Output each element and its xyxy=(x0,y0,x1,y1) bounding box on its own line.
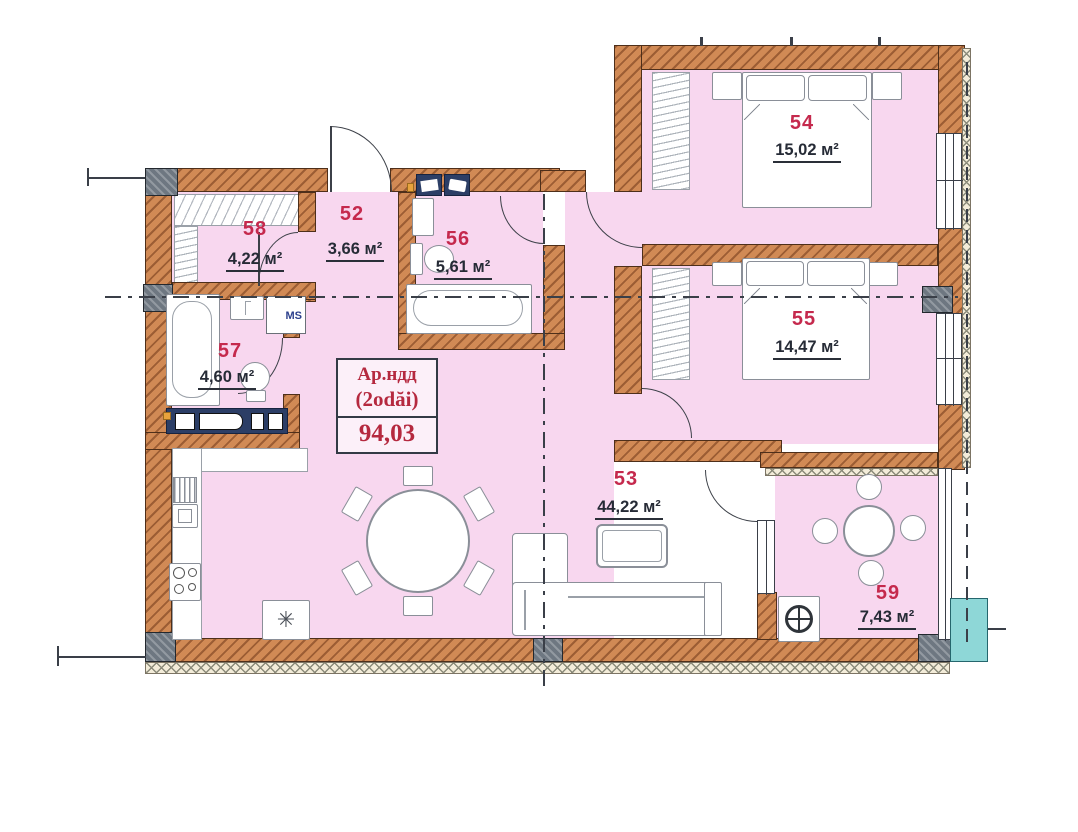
kitchen-drainer xyxy=(173,477,197,503)
extension-tick-topleft-v xyxy=(87,168,89,186)
vent-unit-dial xyxy=(785,605,813,633)
room-area-57-text: 4,60 м² xyxy=(198,368,256,390)
wall-balcony-top xyxy=(760,452,938,468)
title-total-area: 94,03 xyxy=(338,420,436,448)
bed-55-pillow-left xyxy=(746,261,804,286)
room-number-57: 57 xyxy=(200,340,260,363)
balcony-chair-left xyxy=(812,518,838,544)
room-number-56: 56 xyxy=(428,228,488,251)
wall-58-52-upper xyxy=(298,192,316,232)
wall-balcony-partition-base xyxy=(757,592,777,640)
room-area-56: 5,61 м² xyxy=(408,258,518,280)
entrance-door-arc xyxy=(330,126,392,192)
toilet-57-tank xyxy=(246,390,266,402)
room-area-59: 7,43 м² xyxy=(832,608,942,630)
insulation-balcony-top xyxy=(765,468,938,476)
sofa-armrest xyxy=(704,582,722,636)
bed-54-fold-left xyxy=(744,104,760,120)
insulation-bottom xyxy=(145,662,950,674)
bed-54-pillow-right xyxy=(808,75,867,101)
axis-vertical xyxy=(543,194,545,690)
wall-corridor-top xyxy=(540,170,586,192)
room-area-53-text: 44,22 м² xyxy=(595,498,663,520)
washing-machine-label: MS xyxy=(286,310,303,322)
wall-55-bottom xyxy=(614,440,782,462)
room-number-53: 53 xyxy=(596,468,656,491)
balcony-table xyxy=(843,505,895,557)
room-area-57: 4,60 м² xyxy=(172,368,282,390)
door-59-arc xyxy=(705,470,757,522)
washer-icon-2 xyxy=(444,174,470,196)
bathtub-56 xyxy=(406,284,532,334)
glazing-53-59-partition xyxy=(757,520,775,594)
wardrobe-room54 xyxy=(652,72,690,190)
balcony-chair-right xyxy=(900,515,926,541)
top-wall-tick-3 xyxy=(878,37,881,46)
sofa-seam xyxy=(568,596,718,598)
vanity-57 xyxy=(166,408,288,434)
dashed-line-right xyxy=(966,62,968,647)
dining-chair-top xyxy=(403,466,433,486)
dining-table xyxy=(366,489,470,593)
column-top-left xyxy=(145,168,178,196)
washer-icon-1 xyxy=(416,174,442,196)
wall-top-right-block xyxy=(614,45,965,70)
title-line2: (2odăi) xyxy=(338,387,436,412)
wall-right-exterior-c xyxy=(938,403,965,470)
wall-right-exterior-a xyxy=(938,45,965,135)
floor-plan-canvas: MS ✳ xyxy=(0,0,1078,832)
washing-machine-box: MS xyxy=(266,296,306,334)
nightstand-55-right xyxy=(868,262,898,286)
room-area-55-text: 14,47 м² xyxy=(773,338,841,360)
room-number-52: 52 xyxy=(322,203,382,226)
wall-56-bottom xyxy=(398,333,565,350)
room-area-56-text: 5,61 м² xyxy=(434,258,492,280)
bed-55-pillow-right xyxy=(807,261,865,286)
washbasin-57 xyxy=(230,296,264,320)
title-line1: Ар.ндд xyxy=(338,364,436,386)
nightstand-54-right xyxy=(872,72,902,100)
sofa-seam-2 xyxy=(524,590,526,630)
room-number-54: 54 xyxy=(772,112,832,135)
room-area-52: 3,66 м² xyxy=(300,240,410,262)
room-area-59-text: 7,43 м² xyxy=(858,608,916,630)
exterior-unit-line xyxy=(988,628,1006,630)
kitchen-sink xyxy=(172,504,198,528)
valve-dot-56 xyxy=(407,183,414,192)
floor-corridor xyxy=(565,192,614,638)
wall-54-left xyxy=(614,45,642,192)
top-wall-tick-2 xyxy=(790,37,793,46)
kitchen-stove xyxy=(169,563,201,601)
room-area-58: 4,22 м² xyxy=(200,250,310,272)
column-right-mid xyxy=(922,286,953,313)
title-block: Ар.ндд (2odăi) 94,03 xyxy=(336,358,438,454)
window-room55 xyxy=(936,313,962,405)
room-area-55: 14,47 м² xyxy=(748,338,866,360)
balcony-chair-top xyxy=(856,474,882,500)
wall-55-left xyxy=(614,266,642,394)
room-area-54-text: 15,02 м² xyxy=(773,141,841,163)
room-area-54: 15,02 м² xyxy=(748,141,866,163)
room-number-55: 55 xyxy=(774,308,834,331)
axis-horizontal xyxy=(105,296,958,298)
bed-54-pillow-left xyxy=(746,75,805,101)
title-divider xyxy=(338,416,436,418)
nightstand-55-left xyxy=(712,262,742,286)
room-area-58-text: 4,22 м² xyxy=(226,250,284,272)
column-bottom-mid xyxy=(533,638,563,662)
coffee-table xyxy=(596,524,668,568)
wardrobe-room55 xyxy=(652,268,690,380)
room-area-53: 44,22 м² xyxy=(570,498,688,520)
valve-dot-57 xyxy=(163,412,171,420)
appliance-asterisk-glyph: ✳ xyxy=(277,607,295,633)
window-room54 xyxy=(936,133,962,229)
dining-chair-bottom xyxy=(403,596,433,616)
nightstand-54-left xyxy=(712,72,742,100)
extension-tick-bottomleft xyxy=(58,656,146,658)
appliance-asterisk-box: ✳ xyxy=(262,600,310,640)
extension-tick-topleft xyxy=(88,177,145,179)
bed-54-fold-right xyxy=(853,104,869,120)
room-number-59: 59 xyxy=(858,582,918,605)
top-wall-tick-1 xyxy=(700,37,703,46)
room-number-58: 58 xyxy=(225,218,285,241)
room-area-52-text: 3,66 м² xyxy=(326,240,384,262)
exterior-unit-teal xyxy=(950,598,988,662)
extension-tick-bottomleft-v xyxy=(57,646,59,666)
